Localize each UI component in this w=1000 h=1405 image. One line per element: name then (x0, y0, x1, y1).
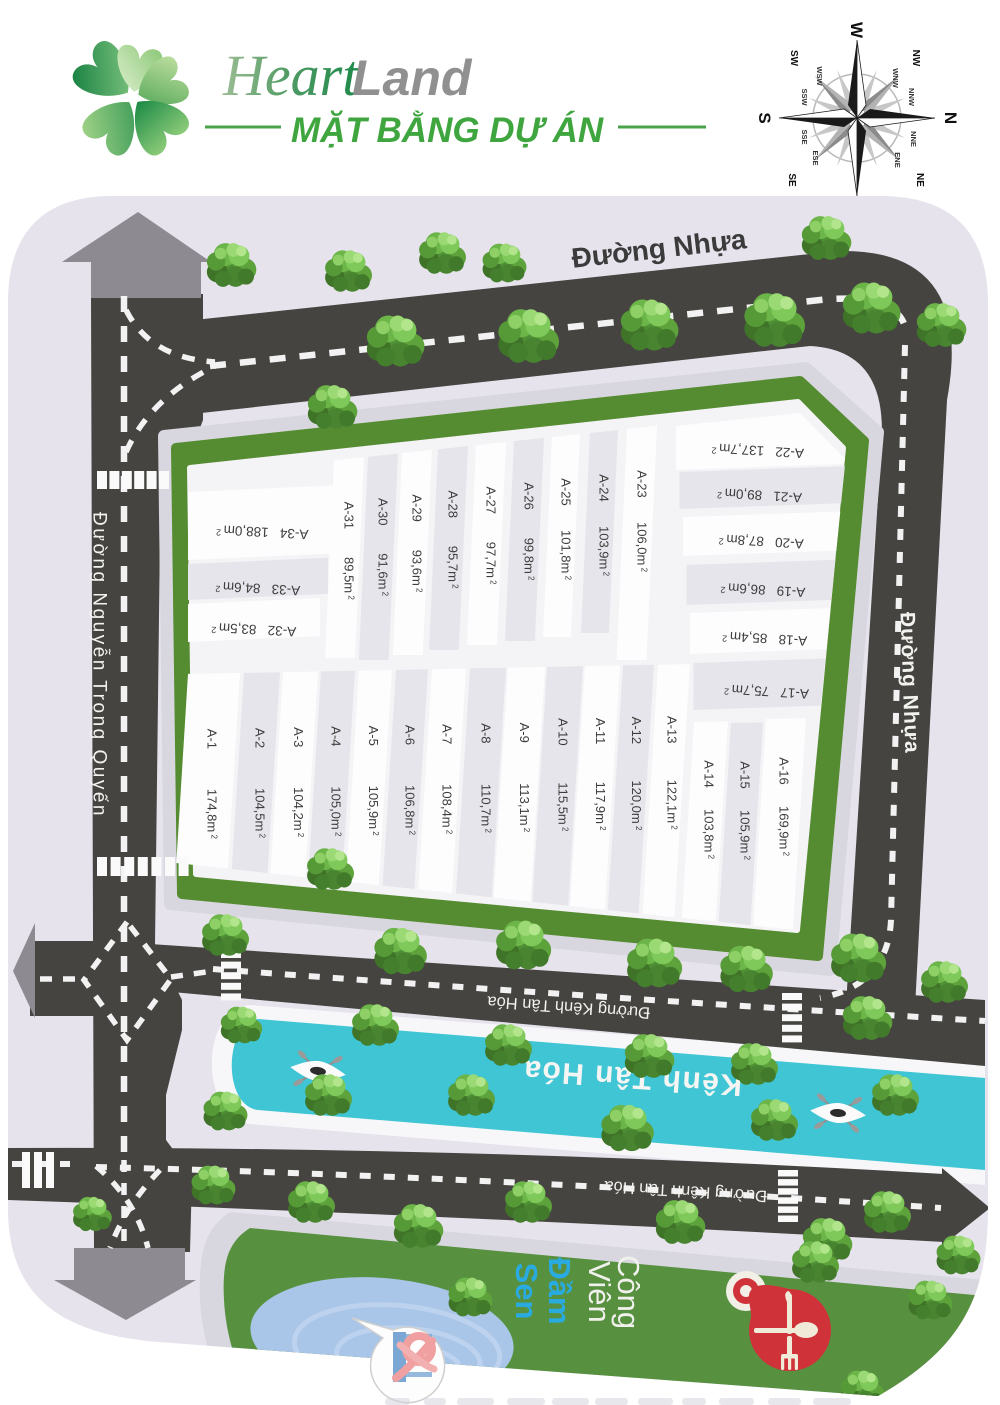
svg-text:S: S (755, 112, 774, 123)
svg-text:101,8m 2: 101,8m 2 (558, 530, 573, 581)
svg-text:A-28: A-28 (445, 490, 460, 517)
svg-text:WSW: WSW (815, 66, 824, 86)
svg-text:120,0m 2: 120,0m 2 (629, 780, 644, 831)
svg-text:A-23: A-23 (634, 470, 649, 497)
svg-text:103,9m 2: 103,9m 2 (596, 526, 611, 577)
svg-text:A-27: A-27 (483, 486, 498, 513)
svg-text:108,4m 2: 108,4m 2 (439, 784, 454, 835)
svg-text:104,2m 2: 104,2m 2 (291, 787, 306, 838)
svg-text:A-31: A-31 (341, 502, 356, 529)
svg-text:N: N (941, 112, 960, 124)
svg-text:SSE: SSE (800, 129, 809, 144)
svg-text:106,0m 2: 106,0m 2 (634, 522, 649, 573)
svg-text:MẶT BẰNG DỰ ÁN: MẶT BẰNG DỰ ÁN (291, 110, 604, 150)
svg-text:A-15: A-15 (738, 761, 753, 788)
svg-text:104,5m 2: 104,5m 2 (252, 788, 267, 839)
svg-text:A-26: A-26 (521, 482, 536, 509)
svg-text:Land: Land (352, 50, 473, 106)
svg-text:ENE: ENE (893, 152, 902, 167)
svg-text:A-30: A-30 (375, 498, 390, 525)
svg-text:122,1m 2: 122,1m 2 (664, 780, 679, 831)
svg-text:Viên: Viên (582, 1261, 617, 1323)
svg-text:A-3: A-3 (291, 727, 306, 747)
svg-text:SE: SE (786, 173, 797, 187)
svg-text:NNE: NNE (909, 131, 918, 147)
svg-text:115,5m 2: 115,5m 2 (555, 782, 570, 832)
svg-text:106,8m 2: 106,8m 2 (402, 785, 417, 836)
svg-text:A-1: A-1 (204, 729, 219, 749)
svg-text:103,8m 2: 103,8m 2 (702, 809, 717, 860)
svg-text:A-14: A-14 (702, 760, 717, 787)
svg-text:105,9m 2: 105,9m 2 (738, 810, 753, 861)
svg-text:SW: SW (788, 50, 799, 67)
svg-text:A-2: A-2 (252, 728, 267, 748)
svg-text:Sen: Sen (509, 1263, 544, 1320)
svg-text:174,8m 2: 174,8m 2 (204, 789, 219, 840)
svg-text:WNW: WNW (891, 68, 900, 88)
svg-text:A-11: A-11 (593, 718, 608, 745)
svg-text:A-12: A-12 (629, 717, 644, 744)
svg-text:110,7m 2: 110,7m 2 (478, 784, 493, 834)
svg-text:A-4: A-4 (328, 726, 343, 746)
svg-text:A-25: A-25 (558, 478, 573, 505)
svg-text:105,9m 2: 105,9m 2 (366, 786, 381, 837)
svg-text:SSW: SSW (800, 88, 809, 106)
svg-text:NE: NE (914, 173, 925, 187)
svg-text:105,0m 2: 105,0m 2 (328, 786, 343, 837)
svg-text:A-16: A-16 (777, 757, 792, 784)
svg-text:W: W (847, 22, 866, 39)
svg-text:A-7: A-7 (439, 724, 454, 744)
svg-text:113,1m 2: 113,1m 2 (517, 783, 532, 833)
svg-text:ESE: ESE (811, 150, 820, 165)
svg-text:Đường Nguyễn Trọng Quyến: Đường Nguyễn Trọng Quyến (89, 512, 111, 818)
svg-text:Heart: Heart (222, 43, 360, 108)
svg-text:NNW: NNW (907, 88, 916, 107)
svg-text:117,9m 2: 117,9m 2 (593, 782, 608, 832)
svg-text:A-24: A-24 (596, 474, 611, 501)
svg-text:A-10: A-10 (555, 718, 570, 745)
svg-text:169,9m 2: 169,9m 2 (777, 806, 792, 857)
svg-text:A-5: A-5 (366, 726, 381, 746)
svg-text:A-8: A-8 (478, 723, 493, 743)
svg-text:Đầm: Đầm (542, 1257, 577, 1324)
svg-text:A-6: A-6 (402, 725, 417, 745)
svg-text:A-13: A-13 (664, 716, 679, 743)
svg-text:A-9: A-9 (517, 723, 532, 743)
svg-text:A-29: A-29 (409, 494, 424, 521)
svg-text:NW: NW (910, 50, 921, 67)
